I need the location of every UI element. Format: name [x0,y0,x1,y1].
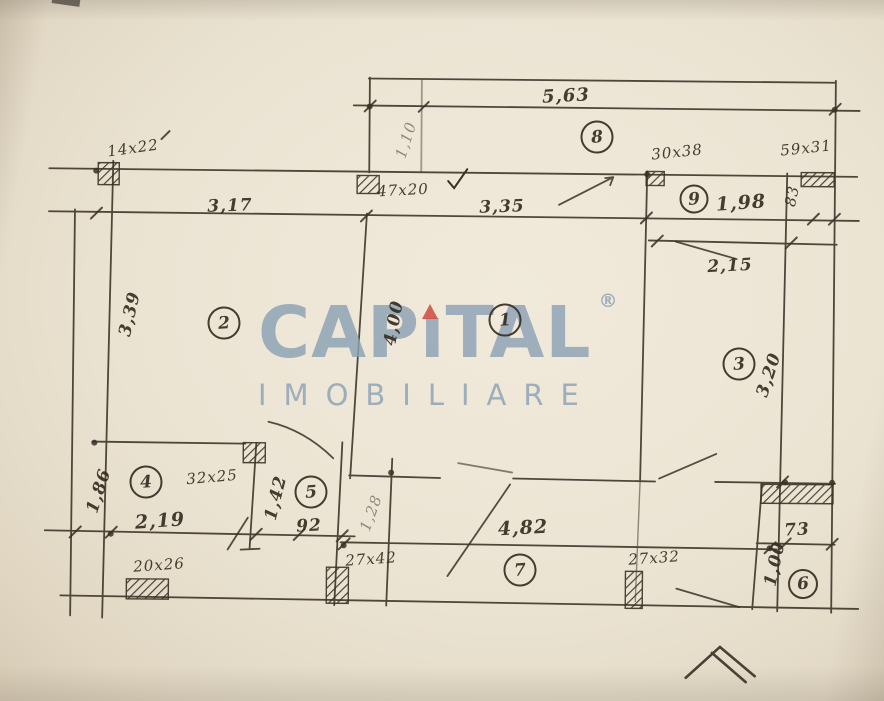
dim-219-label: 2,19 [134,508,186,533]
pillar-32x25 [243,443,265,463]
pillar-14x22 [98,163,119,185]
dim-317-label: 3,17 [207,195,253,217]
dim-27x32-label: 27x32 [628,547,681,569]
dim-563-label: 5,63 [542,84,591,107]
dim-198-label: 1,98 [715,190,767,215]
watermark-logo: CAPıTAL® IMOBILIARE [258,297,619,412]
dim-215-label: 2,15 [707,255,753,277]
wm-part2: TAL [445,291,591,374]
red-triangle-dot-icon [422,304,438,319]
watermark-imobiliare: IMOBILIARE [258,378,619,412]
dim-92-label: 92 [296,515,323,536]
dim-27x42-label: 27x42 [345,548,398,570]
post-20x26 [126,579,168,599]
dim-335-label: 3,35 [479,196,525,218]
dim-20x26-label: 20x26 [133,554,186,576]
dim-482-label: 4,82 [497,516,548,541]
dim-73-label: 73 [784,519,811,540]
post-27x32 [625,571,642,608]
floor-plan-photo: CAPıTAL® IMOBILIARE 8 9 2 1 3 4 5 7 6 14… [0,0,884,701]
post-27x42 [326,567,348,603]
north-arrow [686,647,755,682]
watermark-capital: CAPıTAL® [258,297,619,368]
wall-room6 [761,484,833,504]
registered-mark: ® [599,290,619,312]
dim-47x20-label: 47x20 [377,180,430,201]
pillar-59x31 [801,173,834,187]
